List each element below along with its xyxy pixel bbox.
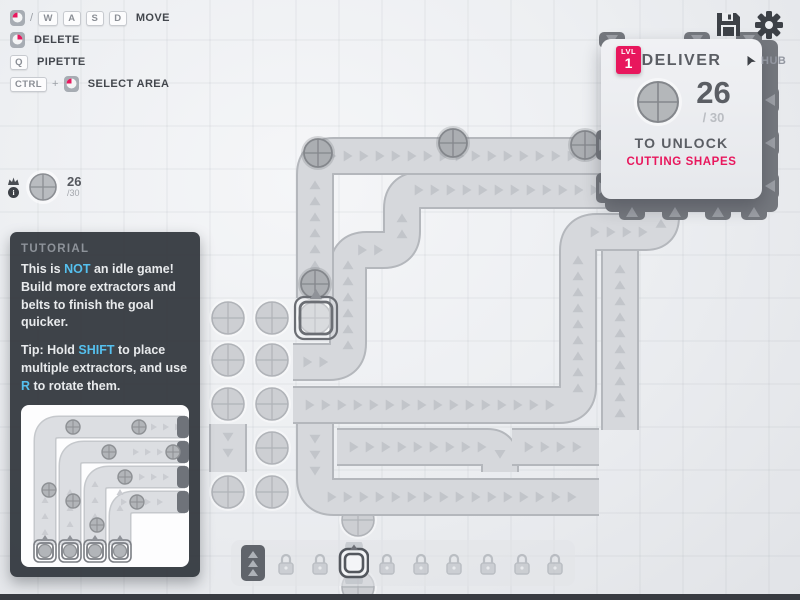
hint-move: / W A S D MOVE	[10, 10, 170, 26]
key-q: Q	[10, 55, 28, 70]
mouse-cursor-icon	[746, 54, 758, 68]
hint-delete-label: DELETE	[34, 34, 80, 46]
keybinding-hints: / W A S D MOVE DELETE Q PIPETTE CTRL + S…	[10, 10, 170, 98]
mouse-right-icon	[10, 32, 25, 48]
level-badge: LVL 1	[616, 46, 641, 74]
key-s: S	[86, 11, 104, 26]
tutorial-panel: TUTORIAL This is NOT an idle game! Build…	[10, 232, 200, 577]
mouse-left-icon	[10, 10, 25, 26]
save-button[interactable]	[715, 11, 742, 38]
key-a: A	[63, 11, 81, 26]
game-screen: / W A S D MOVE DELETE Q PIPETTE CTRL + S…	[0, 0, 800, 600]
mouse-left-icon	[64, 76, 79, 92]
extractor-building[interactable]	[295, 289, 337, 339]
toolbar-slot-locked-9	[505, 542, 537, 584]
pinned-goal: i 26 /30	[8, 167, 81, 207]
goal-shape-icon	[23, 167, 63, 207]
toolbar-slot-belt-1[interactable]	[236, 542, 268, 584]
hint-select-label: SELECT AREA	[88, 78, 170, 90]
hint-move-label: MOVE	[136, 12, 170, 24]
building-toolbar	[231, 540, 575, 586]
bottom-bar	[0, 594, 800, 600]
hint-pipette-label: PIPETTE	[37, 56, 86, 68]
toolbar-slot-miner-selected-4[interactable]	[337, 542, 369, 584]
key-d: D	[109, 11, 127, 26]
hint-separator: /	[30, 12, 33, 24]
deliver-count: 26	[696, 79, 730, 107]
toolbar-slot-locked-10	[538, 542, 570, 584]
tutorial-image	[21, 405, 189, 567]
toolbar-slot-locked-6	[404, 542, 436, 584]
crown-icon	[8, 177, 19, 185]
key-w: W	[38, 11, 57, 26]
hub-panel[interactable]: LVL 1 DELIVER 26 / 30 TO UNLOCK CUTTING …	[601, 39, 762, 199]
hint-select-area: CTRL + SELECT AREA	[10, 76, 170, 92]
toolbar-slot-locked-5	[370, 542, 402, 584]
reward-label: CUTTING SHAPES	[601, 156, 762, 168]
hub-map-label: HUB	[761, 55, 786, 67]
deliver-goal: / 30	[696, 110, 730, 125]
toolbar-slot-locked-7	[437, 542, 469, 584]
tutorial-title: TUTORIAL	[21, 243, 189, 255]
cursor-hub-label: HUB	[746, 54, 786, 68]
tutorial-paragraph-2: Tip: Hold SHIFT to place multiple extrac…	[21, 342, 189, 395]
svg-text:i: i	[12, 188, 14, 197]
hint-pipette: Q PIPETTE	[10, 54, 170, 70]
key-ctrl: CTRL	[10, 77, 47, 92]
goal-total: /30	[67, 189, 81, 198]
hint-delete: DELETE	[10, 32, 170, 48]
level-number: 1	[616, 56, 641, 71]
hint-plus: +	[52, 78, 59, 90]
tutorial-paragraph-1: This is NOT an idle game! Build more ext…	[21, 261, 189, 332]
deliver-shape-icon	[632, 76, 684, 128]
toolbar-slot-locked-8	[471, 542, 503, 584]
toolbar-slot-locked-3	[303, 542, 335, 584]
toolbar-slot-locked-2	[269, 542, 301, 584]
unlock-label: TO UNLOCK	[601, 135, 762, 151]
goal-count: 26	[67, 175, 81, 189]
settings-button[interactable]	[753, 9, 785, 41]
info-icon[interactable]: i	[8, 187, 19, 198]
